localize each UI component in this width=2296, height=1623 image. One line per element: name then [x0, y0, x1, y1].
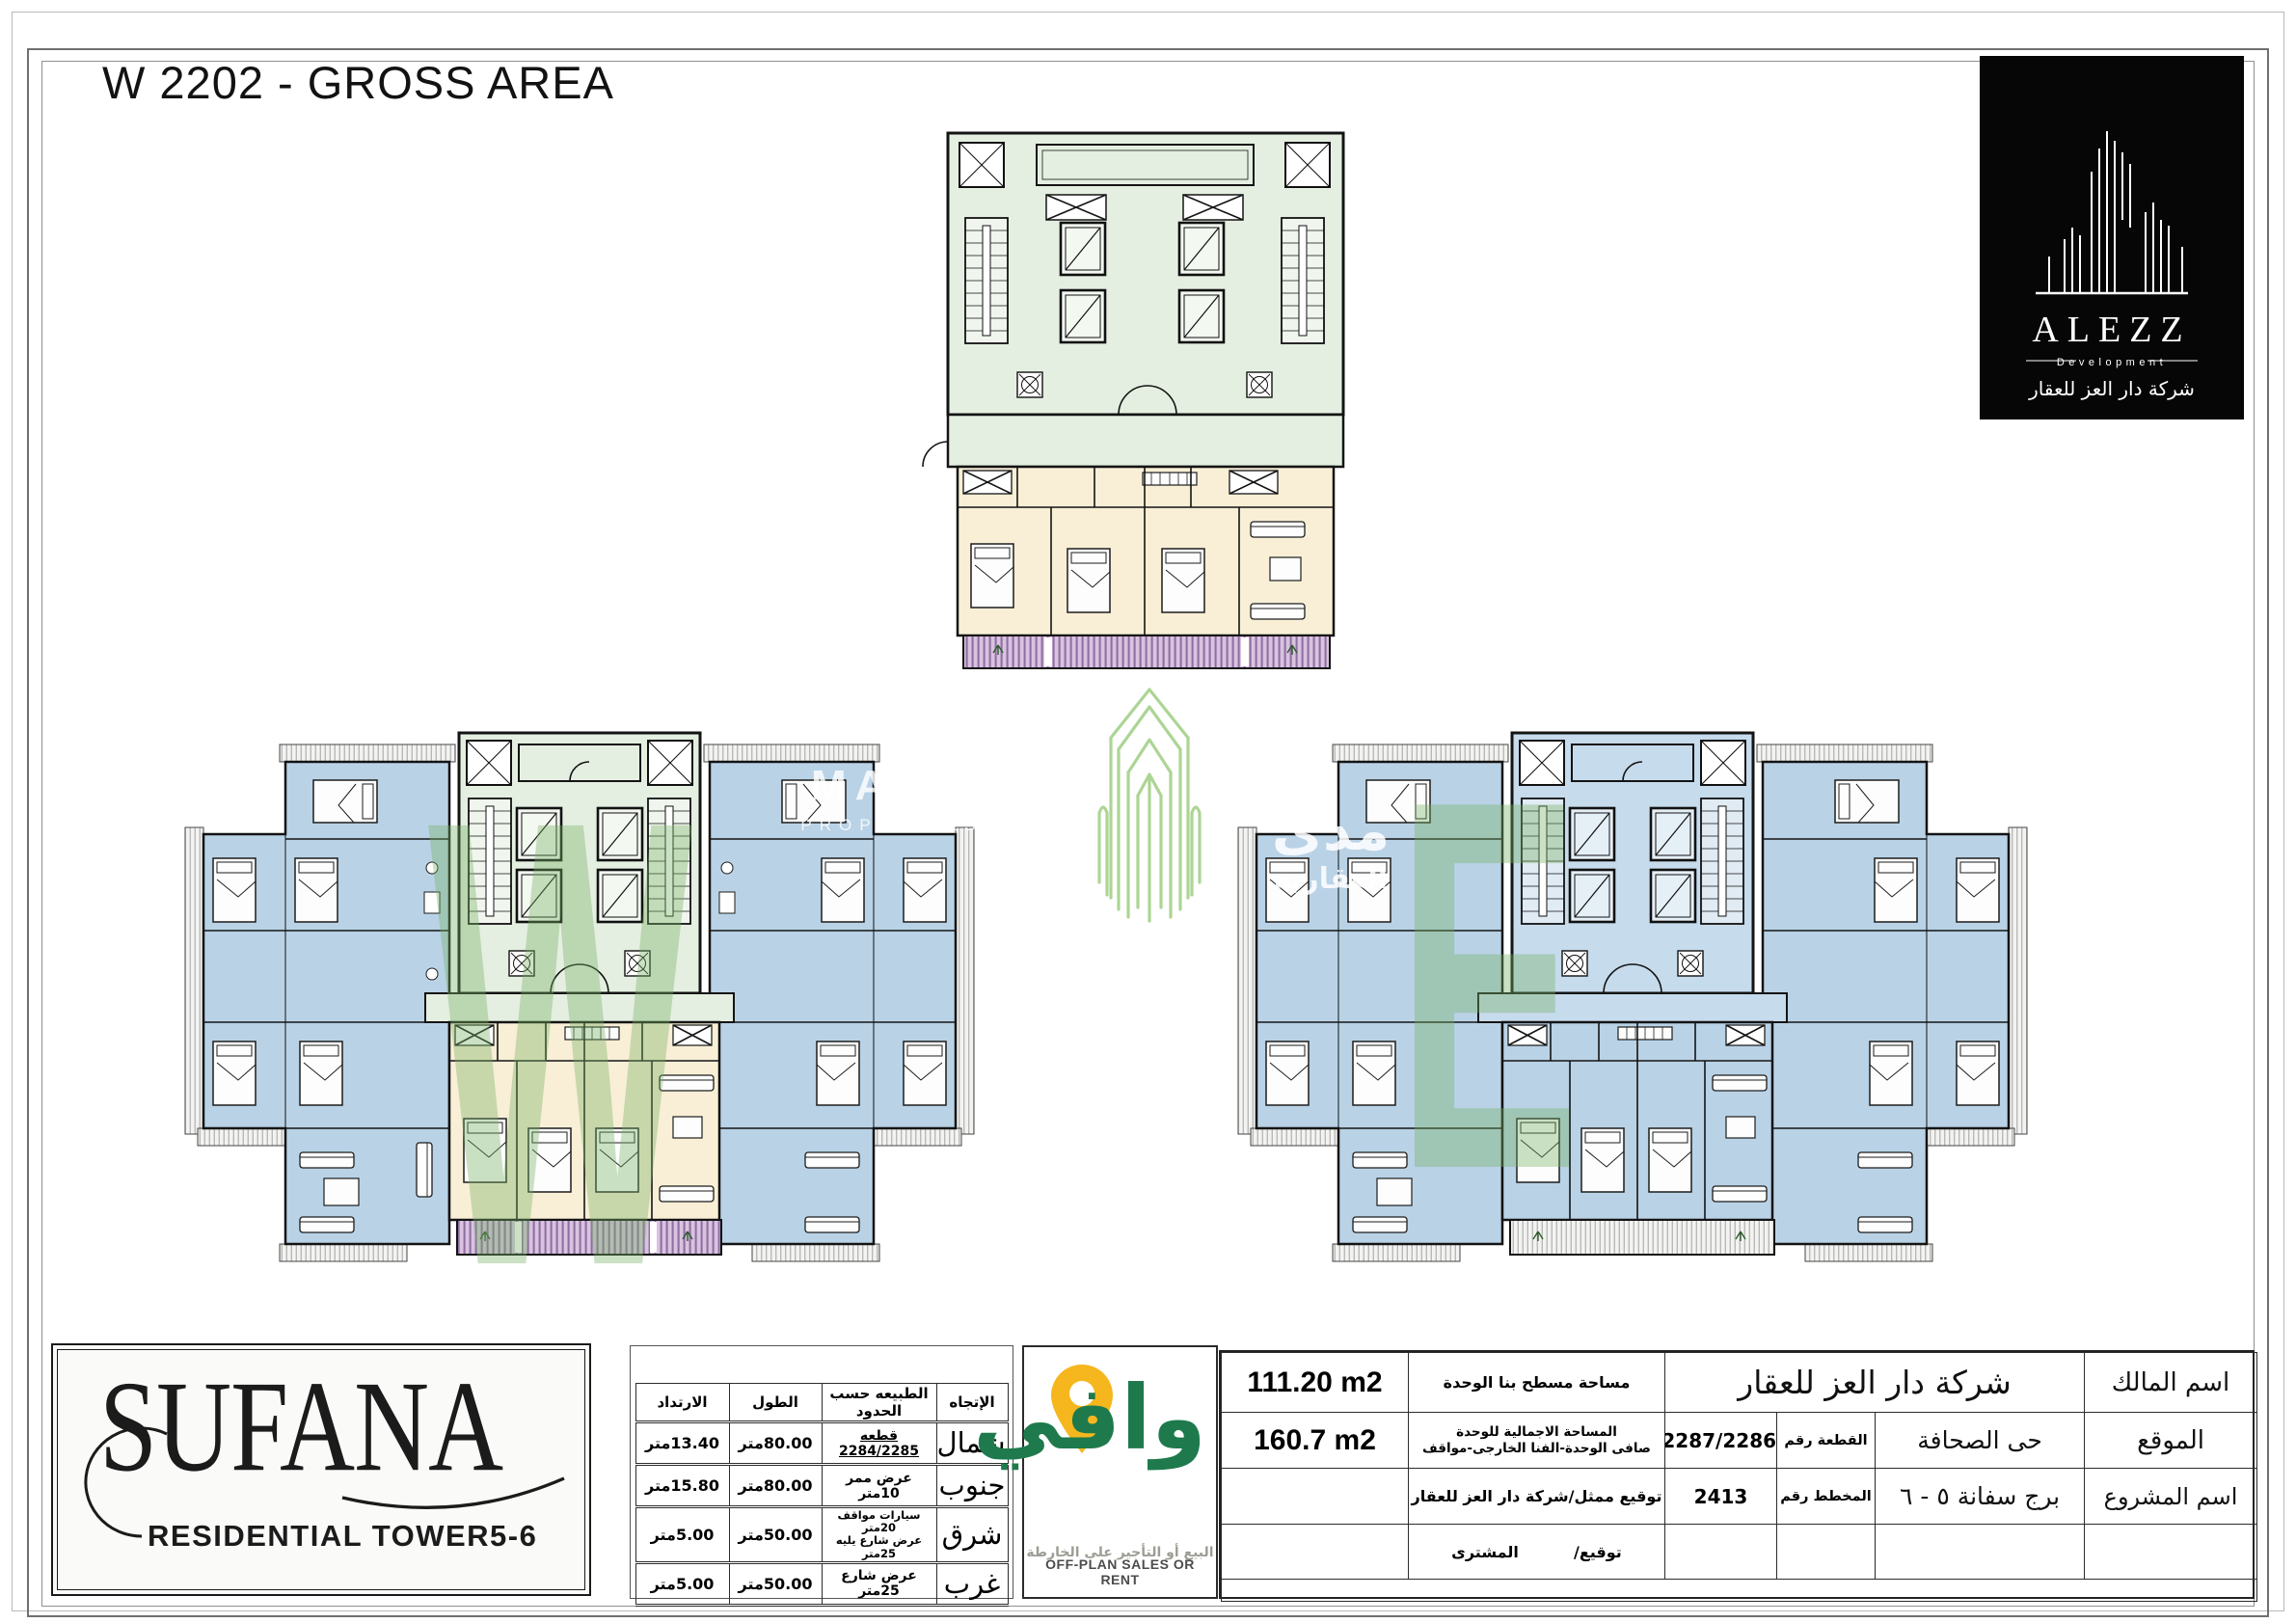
- mada-properties-icon: [1082, 678, 1217, 933]
- stairs-icon: [1701, 798, 1743, 924]
- plot-label: القطعة رقم: [1777, 1413, 1876, 1469]
- left-wing: [185, 744, 455, 1261]
- plan-label: المخطط رقم: [1777, 1469, 1876, 1525]
- empty-cell: [1222, 1525, 1409, 1580]
- rep-signature-cell: [1222, 1469, 1409, 1525]
- drawing-sheet: W 2202 - GROSS AREA ALEZ: [0, 0, 2296, 1623]
- length-south: 80.00متر: [729, 1465, 822, 1507]
- total-area-value: 160.7 m2: [1222, 1413, 1409, 1469]
- direction-east: شرق: [936, 1507, 1008, 1563]
- alezz-company-ar: شركة دار العز للعقار: [2028, 377, 2195, 400]
- table-row: اسم المشروع برج سفانة ٥ - ٦ المخطط رقم 2…: [1222, 1469, 2257, 1525]
- direction-south: جنوب: [936, 1465, 1008, 1507]
- sufana-swash-icon: [53, 1345, 593, 1598]
- stairs-icon: [965, 218, 1008, 343]
- plan-value: 2413: [1665, 1469, 1777, 1525]
- table-row: الموقع حى الصحافة القطعة رقم 2287/2286 ا…: [1222, 1413, 2257, 1469]
- table-row: جنوب عرض ممر 10متر 80.00متر 15.80متر: [635, 1465, 1008, 1507]
- table-row: اسم المالك شركة دار العز للعقار مساحة مس…: [1222, 1353, 2257, 1413]
- balcony-strip: [963, 636, 1330, 668]
- col-header-nature: الطبيعه حسب الحدود: [822, 1384, 936, 1422]
- empty-cell: [1665, 1525, 1777, 1580]
- alezz-name: ALEZZ: [2032, 310, 2191, 350]
- elevator-icon: [1061, 223, 1105, 275]
- setback-north: 13.40متر: [635, 1422, 729, 1465]
- boundaries-table: الإتجاه الطبيعه حسب الحدود الطول الارتدا…: [630, 1345, 1013, 1599]
- project-info-grid: اسم المالك شركة دار العز للعقار مساحة مس…: [1221, 1352, 2257, 1602]
- length-north: 80.00متر: [729, 1422, 822, 1465]
- owner-label: اسم المالك: [2085, 1353, 2257, 1413]
- nature-west: عرض شارع 25متر: [822, 1562, 936, 1605]
- builtup-area-label: مساحة مسطح بنا الوحدة: [1409, 1353, 1665, 1413]
- owner-value: شركة دار العز للعقار: [1665, 1353, 2085, 1413]
- right-wing: [704, 744, 974, 1261]
- top-floor-plan: [902, 83, 1389, 686]
- elevator-icon: [1061, 290, 1105, 342]
- right-floor-plan: E: [1213, 723, 2052, 1302]
- rep-signature-label: توقيع ممثل/شركة دار العز للعقار: [1409, 1469, 1665, 1525]
- elevator-icon: [1179, 223, 1224, 275]
- table-row: [1222, 1580, 2257, 1602]
- empty-cell: [2085, 1525, 2257, 1580]
- table-row: غرب عرض شارع 25متر 50.00متر 5.00متر: [635, 1562, 1008, 1605]
- project-info-table: اسم المالك شركة دار العز للعقار مساحة مس…: [1219, 1350, 2255, 1599]
- table-row: توقيع/ المشترى: [1222, 1525, 2257, 1580]
- plot-value: 2287/2286: [1665, 1413, 1777, 1469]
- empty-cell: [1777, 1525, 1876, 1580]
- alezz-skyline-icon: ALEZZ Development شركة دار العز للعقار: [1980, 56, 2244, 419]
- empty-row: [1222, 1580, 2257, 1602]
- stairs-icon: [1282, 218, 1324, 343]
- alezz-logo: ALEZZ Development شركة دار العز للعقار: [1980, 56, 2244, 419]
- wafi-tagline-en: OFF-PLAN SALES OR RENT: [1024, 1556, 1216, 1587]
- setback-west: 5.00متر: [635, 1562, 729, 1605]
- table-row: الإتجاه الطبيعه حسب الحدود الطول الارتدا…: [635, 1384, 1008, 1422]
- wafi-logo: وافي البيع أو التأجير على الخارطة OFF-PL…: [1022, 1345, 1218, 1599]
- nature-south: عرض ممر 10متر: [822, 1465, 936, 1507]
- unit-letter-watermark-w: W: [428, 723, 695, 1302]
- sufana-subtitle: RESIDENTIAL TOWER5-6: [148, 1519, 537, 1554]
- unit-letter-watermark-e: E: [1396, 723, 1580, 1280]
- buyer-signature-label: توقيع/ المشترى: [1409, 1525, 1665, 1580]
- total-area-label: المساحة الاجمالية للوحدة صافى الوحدة-الف…: [1409, 1413, 1665, 1469]
- length-east: 50.00متر: [729, 1507, 822, 1563]
- boundaries-table-grid: الإتجاه الطبيعه حسب الحدود الطول الارتدا…: [635, 1383, 1009, 1607]
- elevator-icon: [1179, 290, 1224, 342]
- left-floor-plan: W: [179, 723, 980, 1302]
- col-header-length: الطول: [729, 1384, 822, 1422]
- builtup-area-value: 111.20 m2: [1222, 1353, 1409, 1413]
- direction-west: غرب: [936, 1562, 1008, 1605]
- wafi-name-ar: وافي: [973, 1374, 1206, 1463]
- setback-east: 5.00متر: [635, 1507, 729, 1563]
- sufana-logo: SUFANA RESIDENTIAL TOWER5-6: [51, 1343, 591, 1596]
- nature-east: سيارات مواقف 20متر عرض شارع يليه 25متر: [822, 1507, 936, 1563]
- elevator-icon: [1651, 870, 1695, 922]
- setback-south: 15.80متر: [635, 1465, 729, 1507]
- location-value: حى الصحافة: [1876, 1413, 2085, 1469]
- nature-north: قطعه 2284/2285: [822, 1422, 936, 1465]
- sufana-subtitle-text: RESIDENTIAL TOWER: [148, 1519, 490, 1553]
- alezz-subtitle: Development: [2057, 357, 2167, 368]
- project-label: اسم المشروع: [2085, 1469, 2257, 1525]
- table-row: شمال قطعه 2284/2285 80.00متر 13.40متر: [635, 1422, 1008, 1465]
- sufana-towers: 5-6: [490, 1519, 537, 1553]
- col-header-setback: الارتداد: [635, 1384, 729, 1422]
- table-row: شرق سيارات مواقف 20متر عرض شارع يليه 25م…: [635, 1507, 1008, 1563]
- page-title: W 2202 - GROSS AREA: [102, 56, 614, 109]
- location-label: الموقع: [2085, 1413, 2257, 1469]
- length-west: 50.00متر: [729, 1562, 822, 1605]
- project-value: برج سفانة ٥ - ٦: [1876, 1469, 2085, 1525]
- empty-cell: [1876, 1525, 2085, 1580]
- elevator-icon: [1651, 808, 1695, 860]
